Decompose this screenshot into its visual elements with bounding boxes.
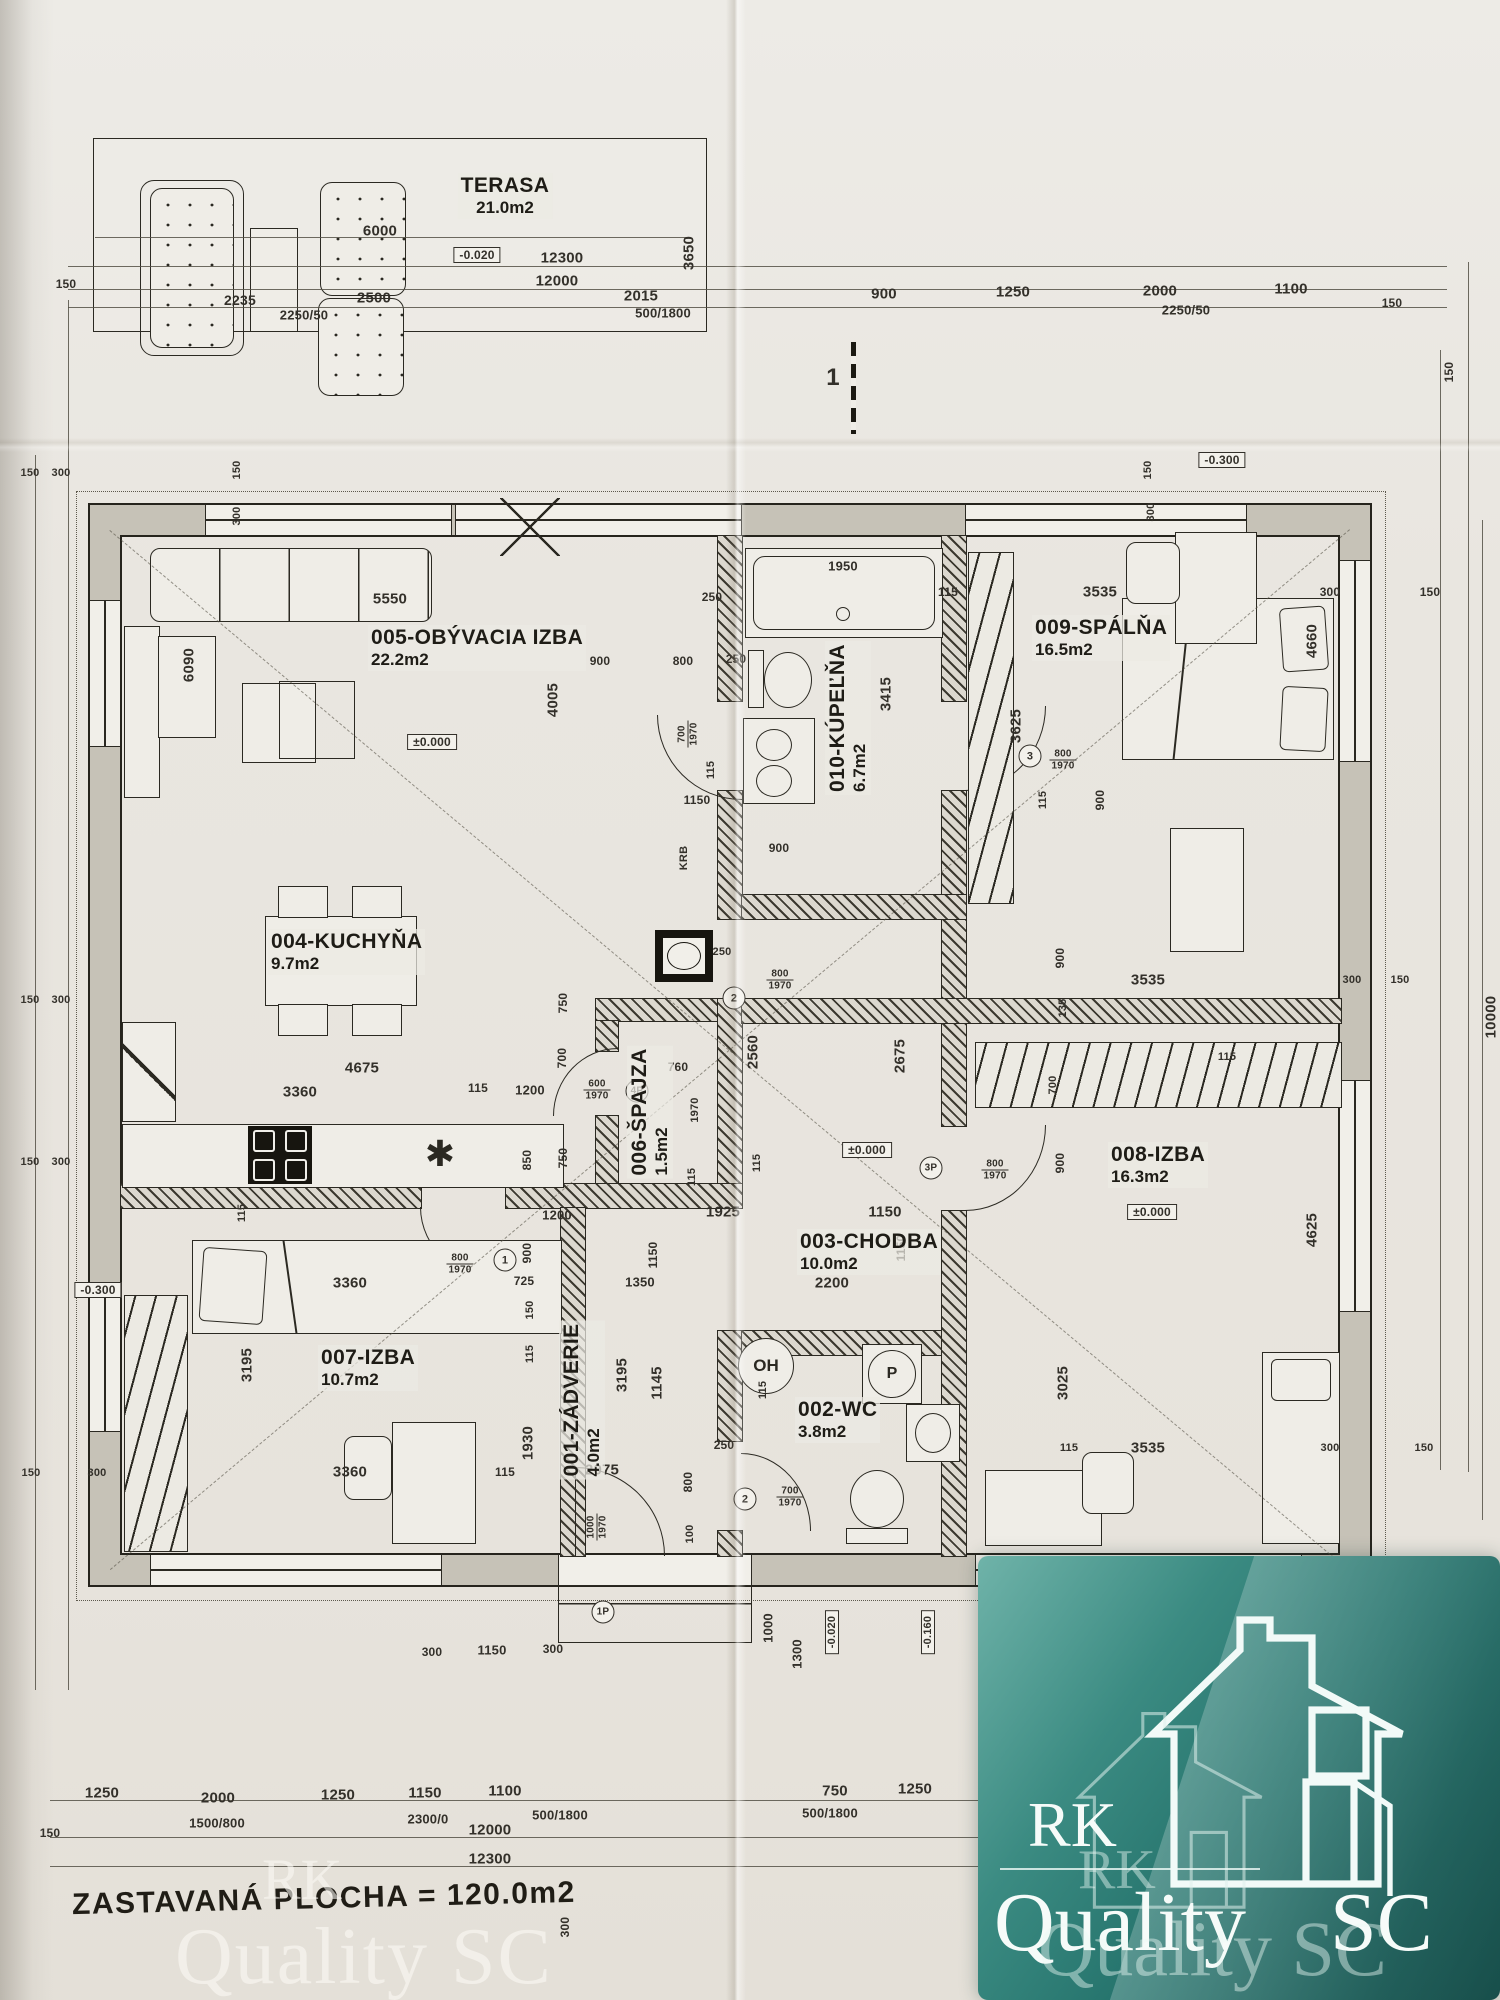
chair — [278, 1004, 328, 1036]
interior-wall — [941, 1022, 967, 1127]
dim-label: 3650 — [681, 236, 698, 270]
room-area: 4.0m2 — [584, 1323, 604, 1476]
room-label: 002-WC3.8m2 — [795, 1397, 880, 1443]
floor-area-note: ZASTAVANÁ PLOCHA = 120.0m2 — [72, 1876, 577, 1922]
sideboard — [124, 626, 160, 798]
dim-label: 1970 — [689, 1097, 701, 1122]
vanity-sink — [743, 718, 815, 804]
dim-label: 1100 — [488, 1783, 521, 1800]
door-size-label: 8001970 — [1049, 749, 1076, 772]
dim-label: 3625 — [1008, 709, 1025, 743]
room-label: 004-KUCHYŇA9.7m2 — [268, 929, 425, 975]
sofa — [150, 548, 432, 622]
interior-wall — [717, 1530, 743, 1557]
dim-label: 1150 — [684, 793, 711, 807]
door-tag: 1 — [494, 1249, 517, 1272]
dim-label: 115 — [938, 585, 958, 599]
dim-label: 115 — [495, 1465, 515, 1479]
dim-label: 2675 — [892, 1039, 909, 1073]
room-area: 10.7m2 — [321, 1370, 415, 1390]
chair — [352, 1004, 402, 1036]
dim-label: 1350 — [625, 1275, 655, 1290]
elevation-marker: -0.300 — [74, 1282, 121, 1298]
dim-label: 115 — [468, 1081, 488, 1095]
dim-label: 1000 — [761, 1613, 776, 1643]
section-line — [851, 342, 856, 434]
interior-wall — [717, 535, 743, 702]
dim-label: 4675 — [345, 1060, 379, 1077]
dim-label: 300 — [52, 467, 71, 479]
toilet-bowl — [850, 1470, 904, 1528]
ceiling-mark — [500, 498, 560, 556]
dim-label: 150 — [1420, 585, 1441, 599]
dim-label: 100 — [684, 1525, 696, 1544]
dim-label: 1145 — [649, 1366, 666, 1399]
dim-label: 150 — [22, 1467, 41, 1479]
dim-label: 250 — [713, 946, 732, 958]
dim-label: 3415 — [878, 677, 895, 711]
door-size-label: 7001970 — [776, 1486, 803, 1509]
dim-label: 1250 — [85, 1785, 119, 1802]
dim-label: 900 — [590, 654, 611, 668]
dim-label: 300 — [1343, 974, 1362, 986]
window — [90, 1290, 120, 1432]
burner-icon — [285, 1159, 307, 1181]
dim-label: 3360 — [333, 1275, 367, 1292]
dim-label: 2000 — [1143, 283, 1177, 300]
dim-label: 300 — [558, 1917, 572, 1938]
door-size-label: 8001970 — [981, 1159, 1008, 1182]
stove — [248, 1126, 312, 1184]
room-name: 006-ŠPAJZA — [628, 1048, 652, 1175]
dim-label: 250 — [714, 1438, 735, 1452]
dim-label: 115 — [757, 1381, 769, 1399]
dim-label: 1250 — [996, 284, 1030, 301]
dimension-line — [68, 307, 1447, 308]
dim-label: 300 — [1321, 1442, 1340, 1454]
door-tag: 1P — [592, 1601, 615, 1624]
dim-label: 115 — [236, 1204, 248, 1222]
door-tag: 2 — [723, 987, 746, 1010]
room-label: 007-IZBA10.7m2 — [318, 1345, 418, 1391]
dim-label: 900 — [520, 1243, 534, 1264]
terrace-sofa-back — [140, 180, 244, 356]
desk — [392, 1422, 476, 1544]
dim-label: 1150 — [477, 1643, 506, 1658]
dim-label: 250 — [726, 652, 747, 666]
dim-label: 1930 — [520, 1426, 537, 1460]
terrace-loveseat — [318, 298, 404, 396]
elevation-marker: -0.160 — [921, 1610, 935, 1654]
door-size-label: 10001970 — [586, 1513, 609, 1540]
dim-label: 1150 — [646, 1242, 660, 1269]
room-name: 010-KÚPEĽŇA — [826, 644, 850, 792]
dim-label: 12300 — [541, 250, 584, 267]
crease-horizontal — [0, 438, 1500, 452]
pillow — [198, 1247, 267, 1325]
dim-label: 800 — [673, 654, 694, 668]
toilet — [748, 650, 764, 708]
dim-label: 300 — [1320, 585, 1341, 599]
dim-label: 1950 — [828, 559, 858, 574]
dim-label: 725 — [514, 1274, 535, 1288]
pillow — [1279, 686, 1328, 752]
dim-label: 3195 — [614, 1358, 631, 1392]
door-tag: 3P — [920, 1157, 943, 1180]
toilet-bowl — [764, 652, 812, 708]
washer-drum-icon: P — [868, 1350, 916, 1398]
dimension-line — [50, 1800, 980, 1801]
dim-label: 150 — [21, 467, 40, 479]
water-heater-label: OH — [753, 1356, 779, 1376]
hand-basin — [906, 1404, 960, 1462]
pillow — [1271, 1359, 1331, 1401]
watermark-logo: RK RK Quality SC Quality SC — [978, 1556, 1500, 2000]
door-tag: 2 — [734, 1488, 757, 1511]
dim-label: 300 — [543, 1642, 564, 1656]
room-label: 003-CHODBA10.0m2 — [797, 1229, 941, 1275]
porch-steps — [558, 1585, 752, 1643]
room-name: 005-OBÝVACIA IZBA — [371, 626, 583, 650]
room-area: 16.3m2 — [1111, 1167, 1205, 1187]
dim-label: 6090 — [181, 648, 198, 682]
dim-label: 750 — [556, 993, 570, 1014]
dim-label: 250 — [702, 590, 723, 604]
dim-label: 1100 — [1274, 281, 1307, 298]
dim-label: 3025 — [1055, 1366, 1072, 1400]
room-name: 004-KUCHYŇA — [271, 930, 422, 954]
elevation-marker: ±0.000 — [1127, 1204, 1177, 1220]
dim-label: 10000 — [1483, 996, 1500, 1039]
drain-icon — [836, 607, 850, 621]
window — [150, 1555, 442, 1585]
window — [1340, 1080, 1370, 1312]
dim-label: 115 — [1060, 1442, 1078, 1454]
interior-wall — [741, 894, 967, 920]
dim-label: 115 — [1037, 791, 1049, 809]
dim-label: 2250/50 — [280, 308, 328, 323]
dim-label: 750 — [822, 1783, 848, 1800]
door-size-label: 8001970 — [446, 1253, 473, 1276]
dim-label: 1150 — [408, 1785, 441, 1802]
dim-label: 2200 — [815, 1275, 849, 1292]
dim-label: 3195 — [239, 1348, 256, 1382]
dimension-line — [68, 289, 1447, 290]
dim-label: 2500 — [357, 290, 391, 307]
dim-label: 115 — [1218, 1051, 1236, 1063]
burner-icon — [253, 1159, 275, 1181]
chair — [352, 886, 402, 918]
room-area: 9.7m2 — [271, 954, 422, 974]
dim-label: 150 — [21, 1156, 40, 1168]
dim-label: 900 — [1093, 790, 1107, 811]
toilet-tank — [846, 1528, 908, 1544]
dim-label: 115 — [686, 1168, 698, 1186]
elevation-marker: -0.300 — [1198, 452, 1245, 468]
dim-label: 115 — [524, 1345, 536, 1363]
dim-label: 300 — [52, 1156, 71, 1168]
dim-label: 150 — [40, 1826, 61, 1840]
office-chair — [1082, 1452, 1134, 1514]
dim-label: 300 — [88, 1467, 107, 1479]
dim-label: 2000 — [201, 1790, 235, 1807]
room-area: 21.0m2 — [461, 198, 550, 218]
dim-label: 1150 — [868, 1204, 901, 1221]
room-name: TERASA — [461, 174, 550, 198]
washer-label: P — [887, 1365, 898, 1383]
dim-label: 150 — [1415, 1442, 1434, 1454]
basin-icon — [756, 729, 792, 761]
dim-label: 1250 — [321, 1787, 355, 1804]
coffee-table — [279, 681, 355, 759]
floor-plan-scan: ✱ OH P — [0, 0, 1500, 2000]
window — [90, 600, 120, 747]
dim-label: 4660 — [1304, 624, 1321, 658]
interior-wall — [941, 535, 967, 702]
basin-icon — [756, 765, 792, 797]
dim-label: 150 — [1391, 974, 1410, 986]
interior-wall — [717, 790, 743, 920]
dimension-line — [1440, 350, 1441, 1470]
burner-icon — [285, 1130, 307, 1152]
dim-label: 150 — [1382, 296, 1403, 310]
dim-label: 800 — [681, 1472, 695, 1493]
dim-label: 115 — [705, 761, 717, 779]
dim-label: 750 — [556, 1148, 570, 1169]
room-area: 1.5m2 — [652, 1048, 672, 1175]
chair — [278, 886, 328, 918]
dresser — [1170, 828, 1244, 952]
fireplace-inner — [662, 937, 706, 975]
interior-wall — [717, 998, 743, 1209]
watermark-quality-ghost: Quality SC — [1038, 1904, 1387, 1994]
dim-label: 5550 — [373, 591, 407, 608]
dimension-line — [35, 455, 36, 1690]
interior-wall — [941, 1210, 967, 1557]
dim-label: 150 — [231, 461, 243, 480]
washing-machine: P — [862, 1344, 922, 1404]
dim-label: 3535 — [1083, 584, 1117, 601]
dimension-line — [68, 266, 1447, 267]
dim-label: 4005 — [545, 683, 562, 717]
dim-label: 2560 — [745, 1035, 762, 1069]
burner-icon — [253, 1130, 275, 1152]
room-area: 3.8m2 — [798, 1422, 877, 1442]
dim-label: 2015 — [624, 288, 658, 305]
room-name: 008-IZBA — [1111, 1143, 1205, 1167]
dimension-line — [50, 1866, 980, 1867]
dim-label: 3535 — [1131, 1440, 1165, 1457]
dim-label: 2235 — [224, 292, 256, 308]
terrace-sliding-door — [455, 505, 742, 535]
room-name: 007-IZBA — [321, 1346, 415, 1370]
dim-label: 115 — [751, 1154, 763, 1172]
room-label: TERASA21.0m2 — [458, 173, 553, 219]
dim-label: 3360 — [283, 1084, 317, 1101]
dim-label: 4625 — [1304, 1213, 1321, 1247]
dim-label: 1500/800 — [189, 1816, 245, 1831]
room-name: 009-SPÁLŇA — [1035, 616, 1167, 640]
dim-label: 700 — [555, 1048, 569, 1069]
dim-label: 300 — [1145, 503, 1157, 522]
dim-label: 1250 — [898, 1781, 932, 1798]
room-label: 001-ZÁDVERIE4.0m2 — [559, 1320, 605, 1479]
door-tag: 3 — [1019, 745, 1042, 768]
interior-wall — [717, 1330, 743, 1442]
room-name: 003-CHODBA — [800, 1230, 938, 1254]
section-mark: 1 — [826, 364, 840, 392]
dim-label: 150 — [21, 994, 40, 1006]
dim-label: 12000 — [469, 1822, 512, 1839]
elevation-marker: ±0.000 — [407, 734, 457, 750]
dim-label: 500/1800 — [532, 1808, 588, 1823]
dim-label: 2250/50 — [1162, 303, 1210, 318]
dim-label: 900 — [1053, 948, 1067, 969]
dim-label: 500/1800 — [635, 306, 691, 321]
dim-label: 1300 — [790, 1639, 805, 1669]
room-name: 001-ZÁDVERIE — [560, 1323, 584, 1476]
room-area: 6.7m2 — [850, 644, 870, 792]
dim-label: 900 — [769, 841, 790, 855]
dim-label: 6000 — [363, 223, 397, 240]
window — [1340, 560, 1370, 762]
dim-label: 150 — [1442, 362, 1456, 383]
dimension-line — [1468, 262, 1469, 1472]
elevation-marker: -0.020 — [453, 247, 500, 263]
dim-label: 900 — [1053, 1153, 1067, 1174]
basin-icon — [915, 1413, 951, 1453]
dim-label: 700 — [1047, 1076, 1059, 1095]
dim-label: 900 — [871, 286, 897, 303]
dimension-line — [50, 1837, 980, 1838]
dim-label: 500/1800 — [802, 1806, 858, 1821]
room-area: 10.0m2 — [800, 1254, 938, 1274]
dim-label: 3535 — [1131, 972, 1165, 989]
dim-label: 150 — [56, 277, 77, 291]
dim-label: 12300 — [469, 1851, 512, 1868]
dim-label: 135 — [1057, 999, 1069, 1018]
entrance-opening — [558, 1555, 752, 1585]
watermark-rule — [1000, 1868, 1260, 1870]
elevation-marker: -0.020 — [825, 1610, 839, 1654]
fireplace-label: KRB — [678, 846, 690, 870]
office-chair — [1126, 542, 1180, 604]
room-area: 16.5m2 — [1035, 640, 1167, 660]
dim-label: 300 — [231, 507, 243, 526]
wardrobe-hangers — [975, 1042, 1342, 1108]
dim-label: 150 — [524, 1301, 536, 1320]
kitchen-counter — [122, 1124, 564, 1188]
dim-label: 1200 — [542, 1208, 572, 1223]
desk — [1175, 532, 1257, 644]
wardrobe-hangers — [124, 1295, 188, 1552]
blanket-line — [283, 1241, 298, 1333]
room-label: 005-OBÝVACIA IZBA22.2m2 — [368, 625, 586, 671]
room-label: 009-SPÁLŇA16.5m2 — [1032, 615, 1170, 661]
room-area: 22.2m2 — [371, 650, 583, 670]
door-size-label: 6001970 — [583, 1079, 610, 1102]
fireplace-flue-icon — [667, 942, 701, 970]
door-size-label: 8001970 — [766, 969, 793, 992]
dim-label: 1200 — [515, 1083, 545, 1098]
room-label: 006-ŠPAJZA1.5m2 — [627, 1045, 673, 1178]
dim-label: 850 — [520, 1150, 534, 1171]
interior-wall — [741, 998, 1342, 1024]
fridge — [122, 1022, 176, 1122]
dim-label: 300 — [52, 994, 71, 1006]
ghost-watermark: Quality SC — [175, 1912, 553, 2000]
window — [965, 505, 1247, 535]
dim-label: 3360 — [333, 1464, 367, 1481]
dim-label: 150 — [1142, 461, 1154, 480]
room-name: 002-WC — [798, 1398, 877, 1422]
dim-label: 2300/0 — [408, 1812, 449, 1827]
room-label: 010-KÚPEĽŇA6.7m2 — [825, 641, 871, 795]
elevation-marker: ±0.000 — [842, 1142, 892, 1158]
dim-label: 12000 — [536, 273, 579, 290]
sink-icon: ✱ — [420, 1134, 460, 1174]
dim-label: 300 — [422, 1645, 443, 1659]
room-label: 008-IZBA16.3m2 — [1108, 1142, 1208, 1188]
door-size-label: 7001970 — [677, 720, 700, 747]
fireplace — [655, 930, 713, 982]
dim-label: 1925 — [706, 1204, 740, 1221]
